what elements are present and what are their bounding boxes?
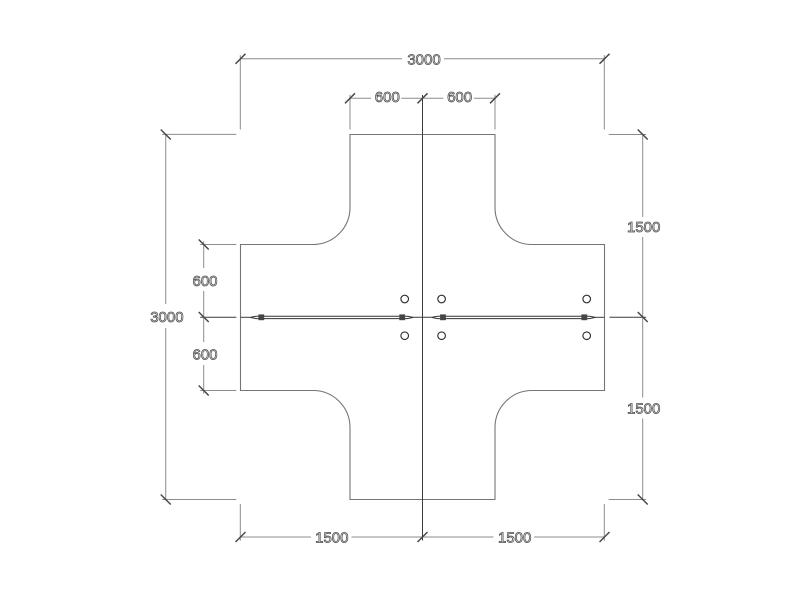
- svg-text:1500: 1500: [315, 530, 348, 547]
- svg-text:600: 600: [375, 89, 400, 106]
- svg-text:1500: 1500: [627, 400, 660, 417]
- svg-text:3000: 3000: [407, 52, 440, 69]
- svg-text:3000: 3000: [150, 309, 183, 326]
- svg-text:1500: 1500: [498, 530, 531, 547]
- svg-text:600: 600: [447, 89, 472, 106]
- svg-text:600: 600: [192, 273, 217, 290]
- svg-text:1500: 1500: [627, 219, 660, 236]
- svg-text:600: 600: [192, 347, 217, 364]
